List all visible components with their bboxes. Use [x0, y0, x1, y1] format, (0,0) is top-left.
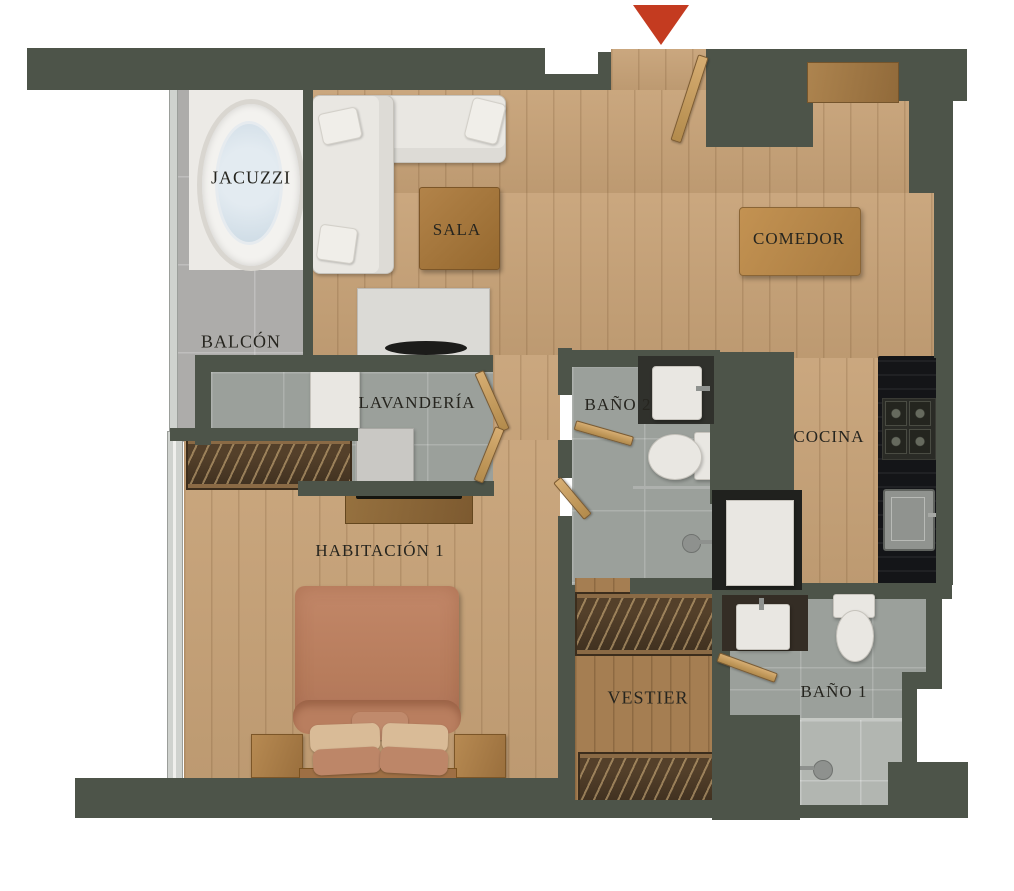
washer	[310, 368, 360, 432]
wall-segment	[75, 778, 575, 818]
wall-segment	[630, 578, 718, 594]
room-label-bano1: BAÑO 1	[801, 682, 868, 702]
wall-segment	[170, 428, 358, 441]
entry-cabinet	[807, 62, 899, 103]
bano1-shower-head-icon	[813, 760, 833, 780]
entry-wall-block	[706, 49, 813, 147]
kitchen-sink	[883, 489, 935, 551]
wall-segment	[558, 348, 572, 395]
stove-burner-icon	[885, 429, 907, 454]
bano1-faucet-icon	[759, 598, 764, 610]
wall-segment	[909, 101, 953, 193]
bed-pillow	[379, 746, 448, 776]
stove-burner-icon	[909, 401, 931, 426]
room-label-comedor: COMEDOR	[753, 229, 845, 249]
entrance-arrow-icon	[633, 5, 689, 45]
habitacion1-window	[167, 431, 183, 782]
room-label-lavanderia: LAVANDERÍA	[358, 393, 475, 413]
wall-segment	[558, 585, 575, 818]
room-label-cocina: COCINA	[793, 427, 864, 447]
fridge	[726, 500, 794, 586]
wall-segment	[902, 672, 942, 689]
wall-segment	[934, 193, 953, 358]
wall-segment	[298, 481, 494, 496]
nightstand	[251, 734, 303, 778]
wall-segment	[27, 48, 545, 90]
kitchen-counter	[878, 356, 936, 586]
bano2-faucet-icon	[696, 386, 710, 391]
bed-duvet	[295, 586, 459, 718]
vestier-closet-bottom	[578, 752, 714, 806]
wall-segment	[936, 358, 953, 585]
bed-pillow	[312, 746, 381, 776]
room-label-balcon: BALCÓN	[201, 332, 281, 353]
wall-segment	[558, 516, 572, 590]
room-label-jacuzzi: JACUZZI	[211, 168, 291, 189]
stove-burner-icon	[909, 429, 931, 454]
wall-segment	[902, 689, 917, 769]
stove-burner-icon	[885, 401, 907, 426]
wall-segment	[926, 597, 942, 677]
room-label-bano2: BAÑO 2	[585, 395, 652, 415]
bano1-toilet-bowl	[836, 610, 874, 662]
tv-icon	[385, 341, 467, 355]
wall-segment	[303, 90, 313, 356]
balcon-glass-railing	[169, 88, 178, 442]
bano2-sink	[652, 366, 702, 420]
nightstand	[454, 734, 506, 778]
wall-segment	[598, 52, 611, 90]
bano1-shower-arm	[800, 766, 814, 770]
bano2-toilet-bowl	[648, 434, 702, 480]
sofa-cushion	[316, 224, 359, 265]
floor-plan: JACUZZI SALA COMEDOR BALCÓN LAVANDERÍA B…	[0, 0, 1014, 891]
vestier-closet-top	[575, 592, 716, 656]
wall-segment	[712, 715, 800, 820]
bano2-shower-arm	[698, 540, 713, 544]
room-label-sala: SALA	[433, 220, 481, 240]
wall-segment	[195, 355, 493, 372]
room-label-vestier: VESTIER	[608, 688, 689, 709]
room-label-habitacion1: HABITACIÓN 1	[315, 541, 444, 561]
bano1-sink	[736, 604, 790, 650]
bano2-towel-bar	[633, 486, 713, 489]
wall-segment	[710, 352, 794, 504]
wall-segment	[558, 440, 572, 478]
